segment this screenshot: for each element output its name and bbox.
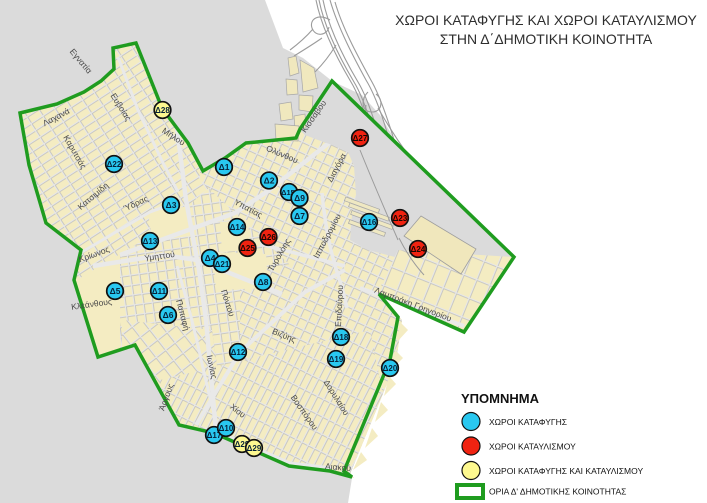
- svg-text:Δ14: Δ14: [230, 223, 245, 232]
- svg-text:ΧΩΡΟΙ ΚΑΤΑΦΥΓΗΣ: ΧΩΡΟΙ ΚΑΤΑΦΥΓΗΣ: [489, 417, 567, 427]
- svg-text:Δ2: Δ2: [264, 176, 275, 186]
- svg-text:Δ25: Δ25: [240, 244, 255, 253]
- svg-text:Δ6: Δ6: [163, 310, 174, 320]
- svg-text:Δ20: Δ20: [383, 364, 398, 373]
- svg-text:Δ24: Δ24: [411, 245, 426, 254]
- svg-text:ΧΩΡΟΙ ΚΑΤΑΦΥΓΗΣ ΚΑΙ ΚΑΤΑΥΛΙΣΜΟ: ΧΩΡΟΙ ΚΑΤΑΦΥΓΗΣ ΚΑΙ ΚΑΤΑΥΛΙΣΜΟΥ: [489, 466, 643, 476]
- svg-text:Δ10: Δ10: [219, 424, 234, 433]
- svg-text:Δ13: Δ13: [143, 237, 158, 246]
- svg-text:ΧΩΡΟΙ ΚΑΤΑΦΥΓΗΣ ΚΑΙ ΧΩΡΟΙ ΚΑΤΑ: ΧΩΡΟΙ ΚΑΤΑΦΥΓΗΣ ΚΑΙ ΧΩΡΟΙ ΚΑΤΑΥΛΙΣΜΟΥ: [395, 12, 697, 28]
- svg-text:Δ8: Δ8: [258, 277, 269, 287]
- svg-text:Δ22: Δ22: [107, 160, 122, 169]
- svg-text:Δ5: Δ5: [110, 286, 121, 296]
- svg-text:Δ12: Δ12: [231, 348, 246, 357]
- svg-text:Δ3: Δ3: [166, 200, 177, 210]
- svg-text:Δ18: Δ18: [334, 333, 349, 342]
- svg-text:ΧΩΡΟΙ ΚΑΤΑΥΛΙΣΜΟΥ: ΧΩΡΟΙ ΚΑΤΑΥΛΙΣΜΟΥ: [489, 442, 576, 452]
- svg-text:Δ16: Δ16: [362, 218, 377, 227]
- svg-text:Δ23: Δ23: [393, 214, 408, 223]
- svg-text:ΟΡΙΑ Δ' ΔΗΜΟΤΙΚΗΣ ΚΟΙΝΟΤΗΤΑΣ: ΟΡΙΑ Δ' ΔΗΜΟΤΙΚΗΣ ΚΟΙΝΟΤΗΤΑΣ: [489, 487, 626, 497]
- svg-text:ΣΤΗΝ Δ΄ΔΗΜΟΤΙΚΗ ΚΟΙΝΟΤΗΤΑ: ΣΤΗΝ Δ΄ΔΗΜΟΤΙΚΗ ΚΟΙΝΟΤΗΤΑ: [440, 31, 653, 47]
- svg-text:Δ29: Δ29: [247, 444, 262, 453]
- svg-text:Δ21: Δ21: [215, 260, 230, 269]
- svg-text:Δ26: Δ26: [261, 233, 276, 242]
- svg-text:Δ7: Δ7: [294, 211, 305, 221]
- svg-text:Δ28: Δ28: [155, 106, 170, 115]
- svg-text:Δ1: Δ1: [219, 162, 230, 172]
- svg-text:Δ11: Δ11: [152, 287, 167, 296]
- svg-text:Δ19: Δ19: [329, 355, 344, 364]
- svg-text:Δ27: Δ27: [353, 134, 368, 143]
- svg-text:Δ9: Δ9: [294, 193, 305, 203]
- svg-text:ΥΠΟΜΝΗΜΑ: ΥΠΟΜΝΗΜΑ: [461, 391, 540, 406]
